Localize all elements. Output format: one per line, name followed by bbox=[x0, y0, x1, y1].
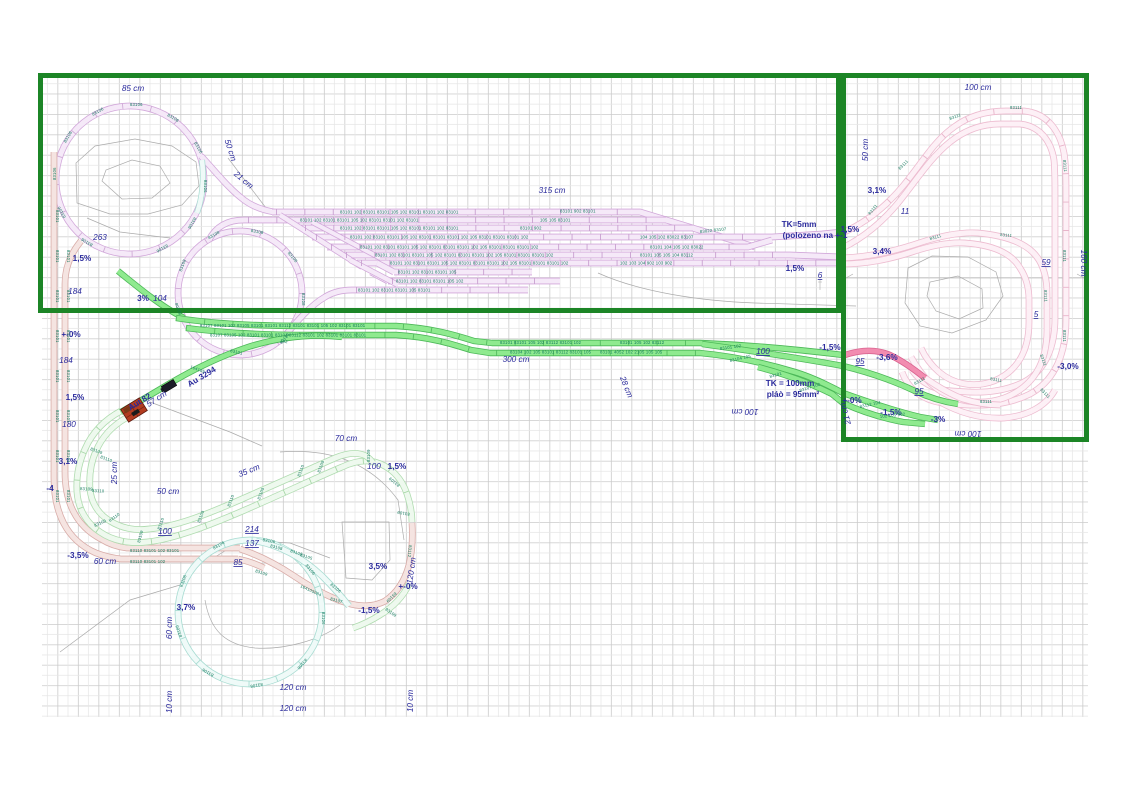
svg-text:83101: 83101 bbox=[55, 370, 60, 383]
svg-text:95: 95 bbox=[855, 357, 865, 366]
svg-text:83111: 83111 bbox=[1010, 105, 1022, 110]
svg-text:10 cm: 10 cm bbox=[165, 691, 174, 713]
svg-text:83101 102 83101 83: 83101 102 83101 83101 105 102 83101 8310… bbox=[375, 253, 554, 258]
svg-text:100: 100 bbox=[756, 347, 770, 356]
svg-text:100 cm: 100 cm bbox=[731, 407, 758, 416]
svg-text:83101 102 83101 83101: 83101 102 83101 83101 105 83101 bbox=[358, 288, 431, 293]
svg-text:TK=5mm: TK=5mm bbox=[782, 220, 817, 229]
svg-text:83101 102 83101 83: 83101 102 83101 83101 105 102 83101 8310… bbox=[300, 218, 419, 223]
svg-text:85: 85 bbox=[233, 558, 243, 567]
svg-text:3,1%: 3,1% bbox=[868, 186, 887, 195]
svg-text:1,5%: 1,5% bbox=[73, 254, 92, 263]
svg-text:-3,0%: -3,0% bbox=[1057, 362, 1079, 371]
svg-text:83110 83101 102: 83110 83101 102 bbox=[130, 559, 166, 564]
svg-text:83101 902 83101: 83101 902 83101 bbox=[560, 209, 596, 214]
svg-text:137: 137 bbox=[245, 539, 259, 548]
svg-text:184: 184 bbox=[59, 356, 73, 365]
svg-text:83101: 83101 bbox=[55, 250, 60, 263]
svg-text:3%: 3% bbox=[137, 294, 150, 303]
svg-text:25 cm: 25 cm bbox=[110, 462, 119, 485]
svg-text:83101 105 105 104 83112: 83101 105 105 104 83112 bbox=[640, 253, 694, 258]
svg-text:83106: 83106 bbox=[130, 102, 143, 107]
svg-text:83101: 83101 bbox=[66, 410, 71, 423]
svg-text:3,5%: 3,5% bbox=[369, 562, 388, 571]
svg-text:120 cm: 120 cm bbox=[280, 683, 307, 692]
svg-text:83101 102 83101 83: 83101 102 83101 83101 105 102 83101 8310… bbox=[340, 226, 459, 231]
svg-text:83101 4052 102 2105 105 105: 83101 4052 102 2105 105 105 bbox=[600, 350, 663, 355]
svg-text:83101: 83101 bbox=[66, 250, 71, 263]
svg-text:50 cm: 50 cm bbox=[157, 487, 179, 496]
svg-text:pláò = 95mm²: pláò = 95mm² bbox=[767, 390, 820, 399]
svg-text:70 cm: 70 cm bbox=[335, 434, 357, 443]
svg-text:100: 100 bbox=[367, 462, 381, 471]
svg-text:83110 83101 102 83101: 83110 83101 102 83101 bbox=[130, 548, 180, 553]
svg-text:1,5%: 1,5% bbox=[66, 393, 85, 402]
svg-text:-1,5%: -1,5% bbox=[358, 606, 380, 615]
svg-text:83111: 83111 bbox=[1062, 330, 1067, 342]
svg-text:83101: 83101 bbox=[66, 290, 71, 303]
svg-text:83107 83101 102 83105: 83107 83101 102 83105 83101 83101 83112 … bbox=[200, 323, 366, 328]
svg-text:83101 102 83101 83101: 83101 102 83101 83101 105 bbox=[398, 270, 457, 275]
svg-text:95: 95 bbox=[914, 387, 924, 396]
svg-text:83109: 83109 bbox=[366, 449, 371, 462]
svg-text:83101: 83101 bbox=[55, 450, 60, 463]
svg-text:83106: 83106 bbox=[52, 167, 57, 180]
svg-text:83101 102 83101 83: 83101 102 83101 83101 105 102 83101 8310… bbox=[350, 235, 529, 240]
svg-text:60 cm: 60 cm bbox=[165, 617, 174, 639]
svg-text:83101: 83101 bbox=[66, 330, 71, 343]
svg-text:83106: 83106 bbox=[203, 180, 208, 193]
svg-text:104 105 102 83022 8310: 104 105 102 83022 83107 bbox=[640, 235, 694, 240]
svg-text:-3,5%: -3,5% bbox=[67, 551, 89, 560]
svg-text:83106: 83106 bbox=[321, 612, 326, 625]
svg-text:6: 6 bbox=[818, 271, 823, 280]
svg-text:83101: 83101 bbox=[66, 490, 71, 503]
svg-text:83101 902: 83101 902 bbox=[520, 226, 542, 231]
svg-text:160 cm: 160 cm bbox=[1079, 250, 1088, 277]
svg-text:83101 102 83101 83: 83101 102 83101 83101 105 102 83101 8310… bbox=[390, 261, 569, 266]
svg-text:83101: 83101 bbox=[55, 490, 60, 503]
svg-text:83101: 83101 bbox=[66, 450, 71, 463]
svg-text:83111: 83111 bbox=[1043, 290, 1048, 303]
svg-text:83101: 83101 bbox=[55, 410, 60, 423]
svg-text:1,5%: 1,5% bbox=[841, 225, 860, 234]
svg-text:1,5%: 1,5% bbox=[786, 264, 805, 273]
svg-text:300 cm: 300 cm bbox=[503, 355, 530, 364]
svg-text:83111: 83111 bbox=[980, 399, 992, 404]
svg-text:83101 102 83101 83: 83101 102 83101 83101 105 102 83101 8310… bbox=[360, 245, 539, 250]
svg-text:83110: 83110 bbox=[92, 488, 105, 493]
svg-text:60 cm: 60 cm bbox=[94, 557, 116, 566]
svg-text:-3,6%: -3,6% bbox=[876, 353, 898, 362]
svg-text:5: 5 bbox=[1034, 310, 1039, 319]
svg-text:-4: -4 bbox=[46, 484, 54, 493]
svg-text:83101 102 83101 83: 83101 102 83101 83101 105 102 83101 8310… bbox=[340, 210, 459, 215]
svg-text:-1,5%: -1,5% bbox=[819, 343, 841, 352]
svg-text:83101 104 105 102 83022: 83101 104 105 102 83022 bbox=[650, 245, 704, 250]
svg-text:120 cm: 120 cm bbox=[280, 704, 307, 713]
svg-text:83104 102 105 83101 8: 83104 102 105 83101 83112 83101 105 bbox=[510, 350, 592, 355]
svg-text:263: 263 bbox=[92, 233, 107, 242]
svg-text:3,7%: 3,7% bbox=[177, 603, 196, 612]
svg-text:83101: 83101 bbox=[66, 370, 71, 383]
svg-text:100 cm: 100 cm bbox=[954, 429, 981, 438]
svg-text:83101: 83101 bbox=[55, 330, 60, 343]
svg-text:83101: 83101 bbox=[55, 210, 60, 223]
svg-text:(polozeno na +-1: (polozeno na +-1 bbox=[783, 231, 848, 240]
svg-text:85 cm: 85 cm bbox=[122, 84, 144, 93]
svg-text:-3%: -3% bbox=[931, 415, 946, 424]
svg-text:315 cm: 315 cm bbox=[539, 186, 566, 195]
svg-text:83108: 83108 bbox=[301, 293, 306, 306]
svg-text:104: 104 bbox=[153, 294, 167, 303]
svg-text:59: 59 bbox=[1041, 258, 1051, 267]
svg-text:83101 102 83101 83101: 83101 102 83101 83101 105 102 bbox=[396, 279, 464, 284]
svg-text:3,4%: 3,4% bbox=[873, 247, 892, 256]
svg-text:105 105 83101: 105 105 83101 bbox=[540, 218, 571, 223]
svg-text:83101: 83101 bbox=[55, 290, 60, 303]
svg-text:11: 11 bbox=[901, 207, 910, 216]
svg-text:83111: 83111 bbox=[1062, 250, 1067, 262]
svg-text:1,5%: 1,5% bbox=[388, 462, 407, 471]
svg-text:50 cm: 50 cm bbox=[861, 139, 870, 161]
svg-text:10 cm: 10 cm bbox=[406, 690, 415, 712]
svg-text:102 103 104 902 103 902: 102 103 104 902 103 902 bbox=[620, 261, 673, 266]
svg-text:214: 214 bbox=[244, 525, 259, 534]
svg-text:83101 83101 105 102: 83101 83101 105 102 83112 83101 102 bbox=[500, 340, 582, 345]
svg-text:83101 105 102 83112: 83101 105 102 83112 bbox=[620, 340, 665, 345]
svg-text:100 cm: 100 cm bbox=[965, 83, 992, 92]
